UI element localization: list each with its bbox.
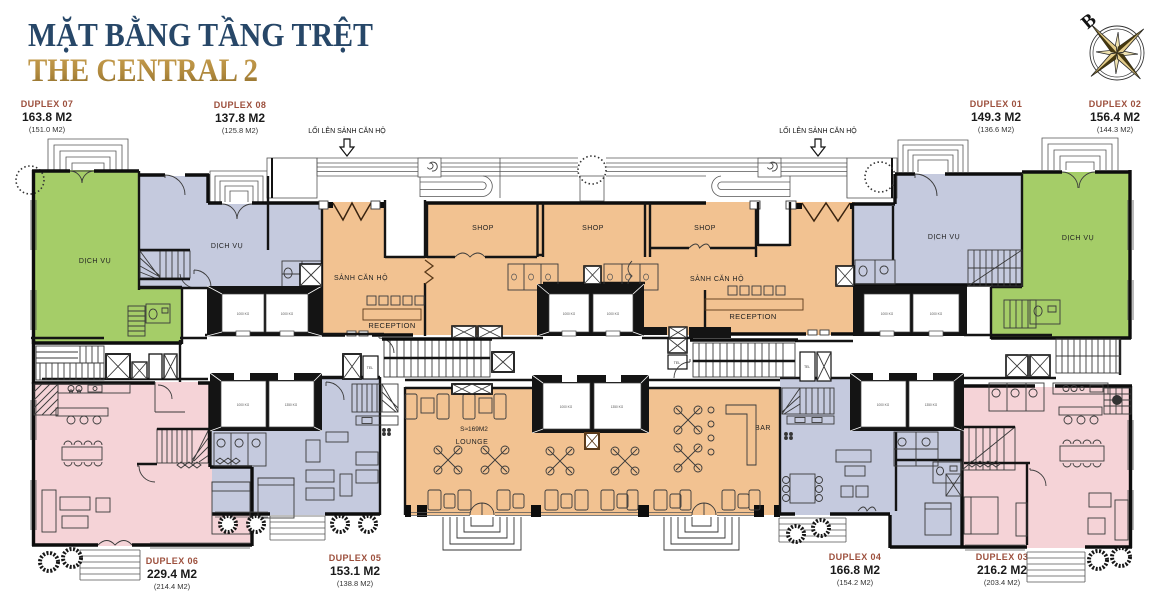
svg-text:DUPLEX 07: DUPLEX 07 — [21, 99, 74, 109]
svg-text:1000 KG: 1000 KG — [560, 405, 573, 409]
svg-text:DỊCH VỤ: DỊCH VỤ — [211, 243, 243, 250]
svg-text:1000 KG: 1000 KG — [607, 312, 620, 316]
svg-text:156.4 M2: 156.4 M2 — [1090, 110, 1140, 124]
svg-text:1000 KG: 1000 KG — [930, 312, 943, 316]
svg-text:MẶT BẰNG TẦNG TRỆT: MẶT BẰNG TẦNG TRỆT — [28, 15, 373, 54]
svg-text:DUPLEX 04: DUPLEX 04 — [829, 552, 882, 562]
svg-text:SHOP: SHOP — [582, 225, 604, 232]
svg-text:1350 KG: 1350 KG — [285, 403, 298, 407]
svg-text:TEL: TEL — [367, 366, 373, 370]
svg-text:153.1 M2: 153.1 M2 — [330, 564, 380, 578]
svg-text:1000 KG: 1000 KG — [881, 312, 894, 316]
svg-text:DUPLEX 05: DUPLEX 05 — [329, 553, 382, 563]
svg-text:(203.4 M2): (203.4 M2) — [984, 578, 1021, 587]
svg-text:DUPLEX 02: DUPLEX 02 — [1089, 99, 1142, 109]
svg-text:216.2 M2: 216.2 M2 — [977, 563, 1027, 577]
svg-text:TEL: TEL — [674, 361, 680, 365]
svg-text:(214.4 M2): (214.4 M2) — [154, 582, 191, 591]
svg-text:TEL: TEL — [804, 365, 810, 369]
svg-text:RECEPTION: RECEPTION — [729, 312, 776, 321]
svg-text:RECEPTION: RECEPTION — [368, 321, 415, 330]
svg-text:DUPLEX 01: DUPLEX 01 — [970, 99, 1023, 109]
svg-text:1000 KG: 1000 KG — [237, 403, 250, 407]
svg-text:SẢNH CĂN HỘ: SẢNH CĂN HỘ — [334, 273, 388, 282]
svg-text:SẢNH CĂN HỘ: SẢNH CĂN HỘ — [690, 274, 744, 283]
svg-text:THE CENTRAL 2: THE CENTRAL 2 — [28, 53, 258, 89]
svg-text:(151.0 M2): (151.0 M2) — [29, 125, 66, 134]
svg-text:(125.8 M2): (125.8 M2) — [222, 126, 259, 135]
svg-text:166.8 M2: 166.8 M2 — [830, 563, 880, 577]
svg-text:1000 KG: 1000 KG — [281, 312, 294, 316]
svg-text:163.8 M2: 163.8 M2 — [22, 110, 72, 124]
svg-text:(144.3 M2): (144.3 M2) — [1097, 125, 1134, 134]
svg-text:(138.8 M2): (138.8 M2) — [337, 579, 374, 588]
svg-text:149.3 M2: 149.3 M2 — [971, 110, 1021, 124]
svg-text:S≈169M2: S≈169M2 — [460, 426, 488, 433]
svg-text:DUPLEX 06: DUPLEX 06 — [146, 556, 199, 566]
svg-text:1350 KG: 1350 KG — [611, 405, 624, 409]
svg-text:DUPLEX 03: DUPLEX 03 — [976, 552, 1029, 562]
svg-text:(154.2 M2): (154.2 M2) — [837, 578, 874, 587]
svg-text:DỊCH VỤ: DỊCH VỤ — [1062, 235, 1094, 242]
svg-text:SHOP: SHOP — [694, 225, 716, 232]
svg-text:137.8 M2: 137.8 M2 — [215, 111, 265, 125]
svg-text:DỊCH VỤ: DỊCH VỤ — [928, 234, 960, 241]
svg-text:1000 KG: 1000 KG — [237, 312, 250, 316]
svg-text:229.4 M2: 229.4 M2 — [147, 567, 197, 581]
svg-text:1000 KG: 1000 KG — [563, 312, 576, 316]
svg-text:1350 KG: 1350 KG — [925, 403, 938, 407]
svg-text:DỊCH VỤ: DỊCH VỤ — [79, 258, 111, 265]
svg-text:DUPLEX 08: DUPLEX 08 — [214, 100, 267, 110]
svg-text:(136.6 M2): (136.6 M2) — [978, 125, 1015, 134]
svg-text:SHOP: SHOP — [472, 225, 494, 232]
svg-text:1000 KG: 1000 KG — [877, 403, 890, 407]
svg-text:LOUNGE: LOUNGE — [456, 439, 489, 446]
svg-text:BAR: BAR — [755, 425, 771, 432]
